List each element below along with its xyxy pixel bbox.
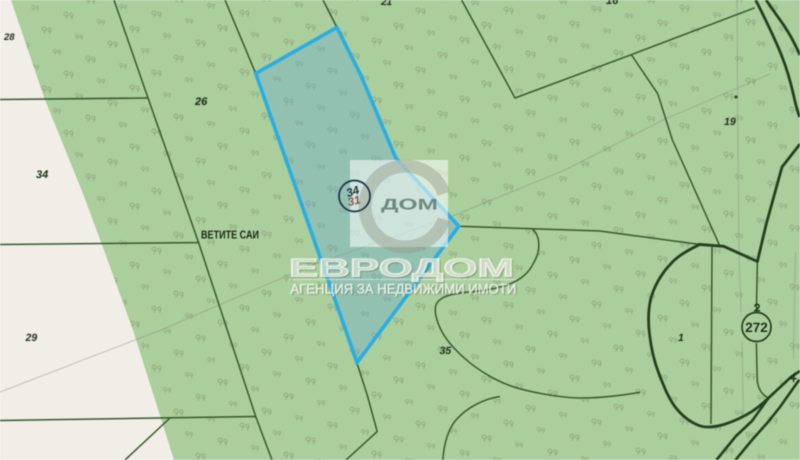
- svg-text:ЕВРОДОМ: ЕВРОДОМ: [289, 254, 514, 282]
- svg-text:ВЕТИТЕ САИ: ВЕТИТЕ САИ: [201, 230, 259, 242]
- svg-text:16: 16: [606, 0, 619, 7]
- svg-text:272: 272: [745, 320, 768, 335]
- svg-text:26: 26: [194, 96, 208, 108]
- svg-text:28: 28: [3, 32, 15, 43]
- svg-text:34: 34: [36, 169, 48, 181]
- svg-text:21: 21: [380, 0, 393, 8]
- svg-text:19: 19: [724, 116, 736, 128]
- svg-text:ДОМ: ДОМ: [381, 197, 438, 214]
- svg-text:1: 1: [678, 332, 684, 344]
- svg-text:29: 29: [25, 332, 38, 344]
- svg-text:35: 35: [440, 345, 452, 357]
- svg-text:АГЕНЦИЯ ЗА НЕДВИЖИМИ ИМОТИ: АГЕНЦИЯ ЗА НЕДВИЖИМИ ИМОТИ: [290, 282, 516, 297]
